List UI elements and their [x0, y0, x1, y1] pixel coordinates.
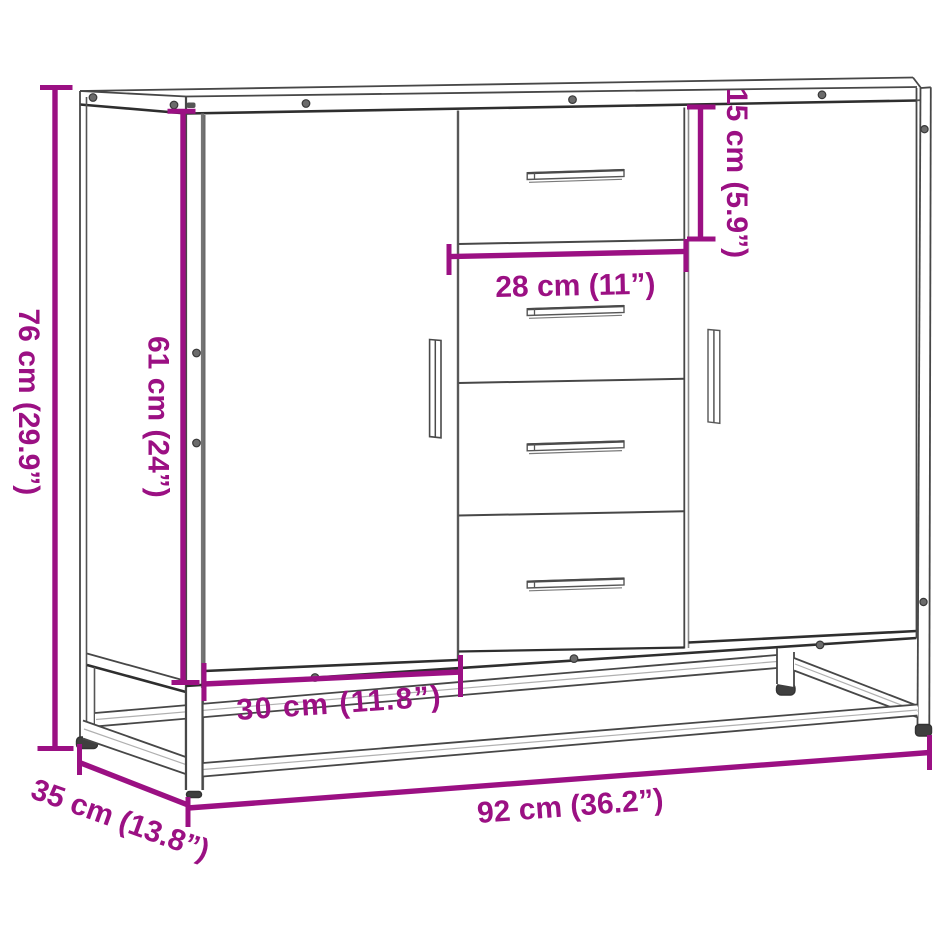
svg-text:61 cm (24”): 61 cm (24”): [142, 336, 175, 498]
svg-text:15 cm (5.9”): 15 cm (5.9”): [720, 88, 753, 258]
svg-text:76 cm (29.9”): 76 cm (29.9”): [12, 309, 45, 496]
svg-text:28 cm (11”): 28 cm (11”): [495, 268, 656, 304]
